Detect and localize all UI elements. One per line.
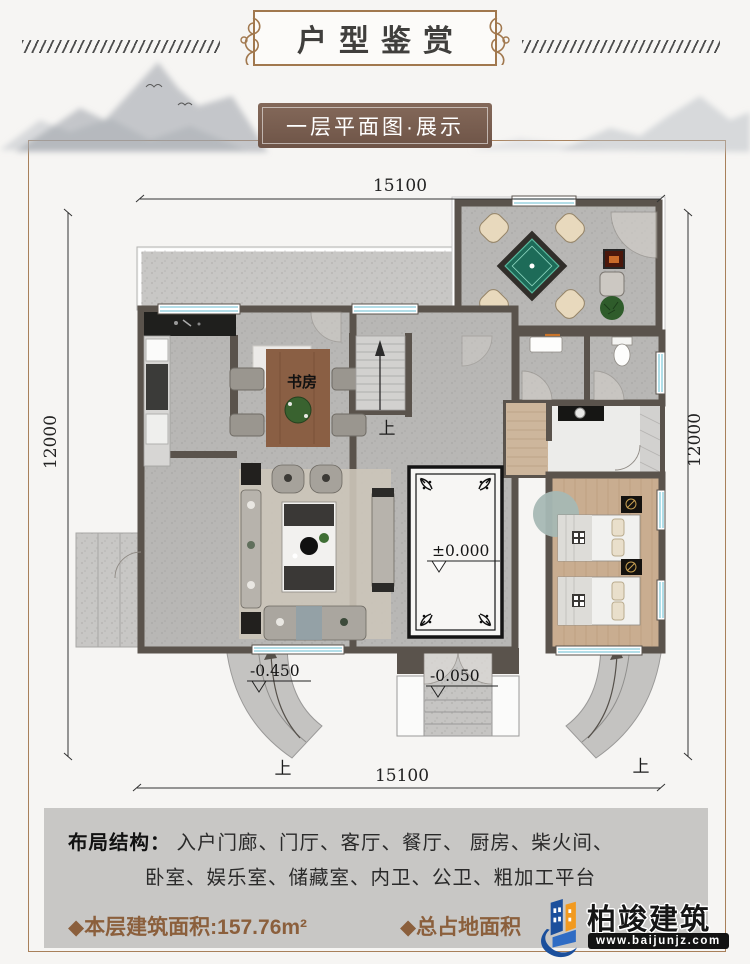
bath-corridor-block <box>506 403 662 475</box>
logo-name: 柏竣建筑 <box>587 896 711 938</box>
window <box>657 580 665 620</box>
plant-icon <box>600 296 624 320</box>
nightstand <box>621 496 642 513</box>
up-label-ramp-left: 上 <box>275 759 292 778</box>
armchair <box>600 272 624 296</box>
window <box>158 304 240 314</box>
dim-right-label: 12000 <box>685 413 705 467</box>
svg-text:-0.050: -0.050 <box>430 667 480 685</box>
layout-structure-line1: 布局结构：入户门廊、门厅、客厅、餐厅、 厨房、柴火间、 <box>68 826 613 855</box>
window <box>352 304 418 314</box>
study-label: 书房 <box>287 373 317 391</box>
sink <box>530 337 562 352</box>
stairs <box>356 336 405 410</box>
rough-processing-platform <box>137 247 461 310</box>
sofa-bottom <box>264 606 366 640</box>
dimension-left <box>64 209 72 760</box>
subtitle-text: 一层平面图·展示 <box>286 111 464 141</box>
total-area-label: ◆总占地面积 <box>400 911 521 941</box>
dim-left-label: 12000 <box>41 415 61 469</box>
entry-ramp-right <box>566 646 662 758</box>
nightstand <box>621 559 642 575</box>
living-room <box>239 463 394 654</box>
layout-room-list-2: 卧室、娱乐室、储藏室、内卫、公卫、粗加工平台 <box>145 861 596 890</box>
up-label-ramp-right: 上 <box>633 757 650 776</box>
brand-logo: 柏竣建筑 www.baijunjz.com <box>532 895 728 959</box>
window <box>556 646 642 655</box>
bathrooms-upper <box>516 333 665 403</box>
entry-steps <box>397 648 519 736</box>
bed <box>558 515 640 561</box>
window <box>657 490 665 530</box>
subtitle-banner: 一层平面图·展示 <box>258 103 492 148</box>
layout-room-list-1: 入户门廊、门厅、客厅、餐厅、 厨房、柴火间、 <box>177 832 614 854</box>
logo-url: www.baijunjz.com <box>588 933 729 949</box>
up-label-stairs: 上 <box>379 419 396 438</box>
dimension-right <box>684 209 692 760</box>
building-logo-icon <box>532 895 588 959</box>
window <box>656 352 665 394</box>
floor-area-value: ◆本层建筑面积:157.76m² <box>68 911 307 941</box>
layout-structure-label: 布局结构： <box>68 832 171 854</box>
bed <box>558 577 640 625</box>
chaise-right <box>372 488 394 592</box>
window <box>252 645 344 654</box>
bedroom <box>533 475 665 655</box>
svg-text:±0.000: ±0.000 <box>432 542 489 560</box>
dim-bottom-label: 15100 <box>375 766 429 786</box>
kitchen-counter <box>144 312 236 336</box>
coffee-table <box>282 502 336 592</box>
side-platform <box>76 533 142 647</box>
poster-page: 15100 15100 12000 12000 书房 ±0.000 -0.450 <box>0 0 750 964</box>
plant-icon <box>285 397 311 423</box>
toilet <box>614 344 630 366</box>
window <box>512 196 576 206</box>
dim-top-label: 15100 <box>373 176 427 196</box>
svg-text:-0.450: -0.450 <box>250 662 300 680</box>
